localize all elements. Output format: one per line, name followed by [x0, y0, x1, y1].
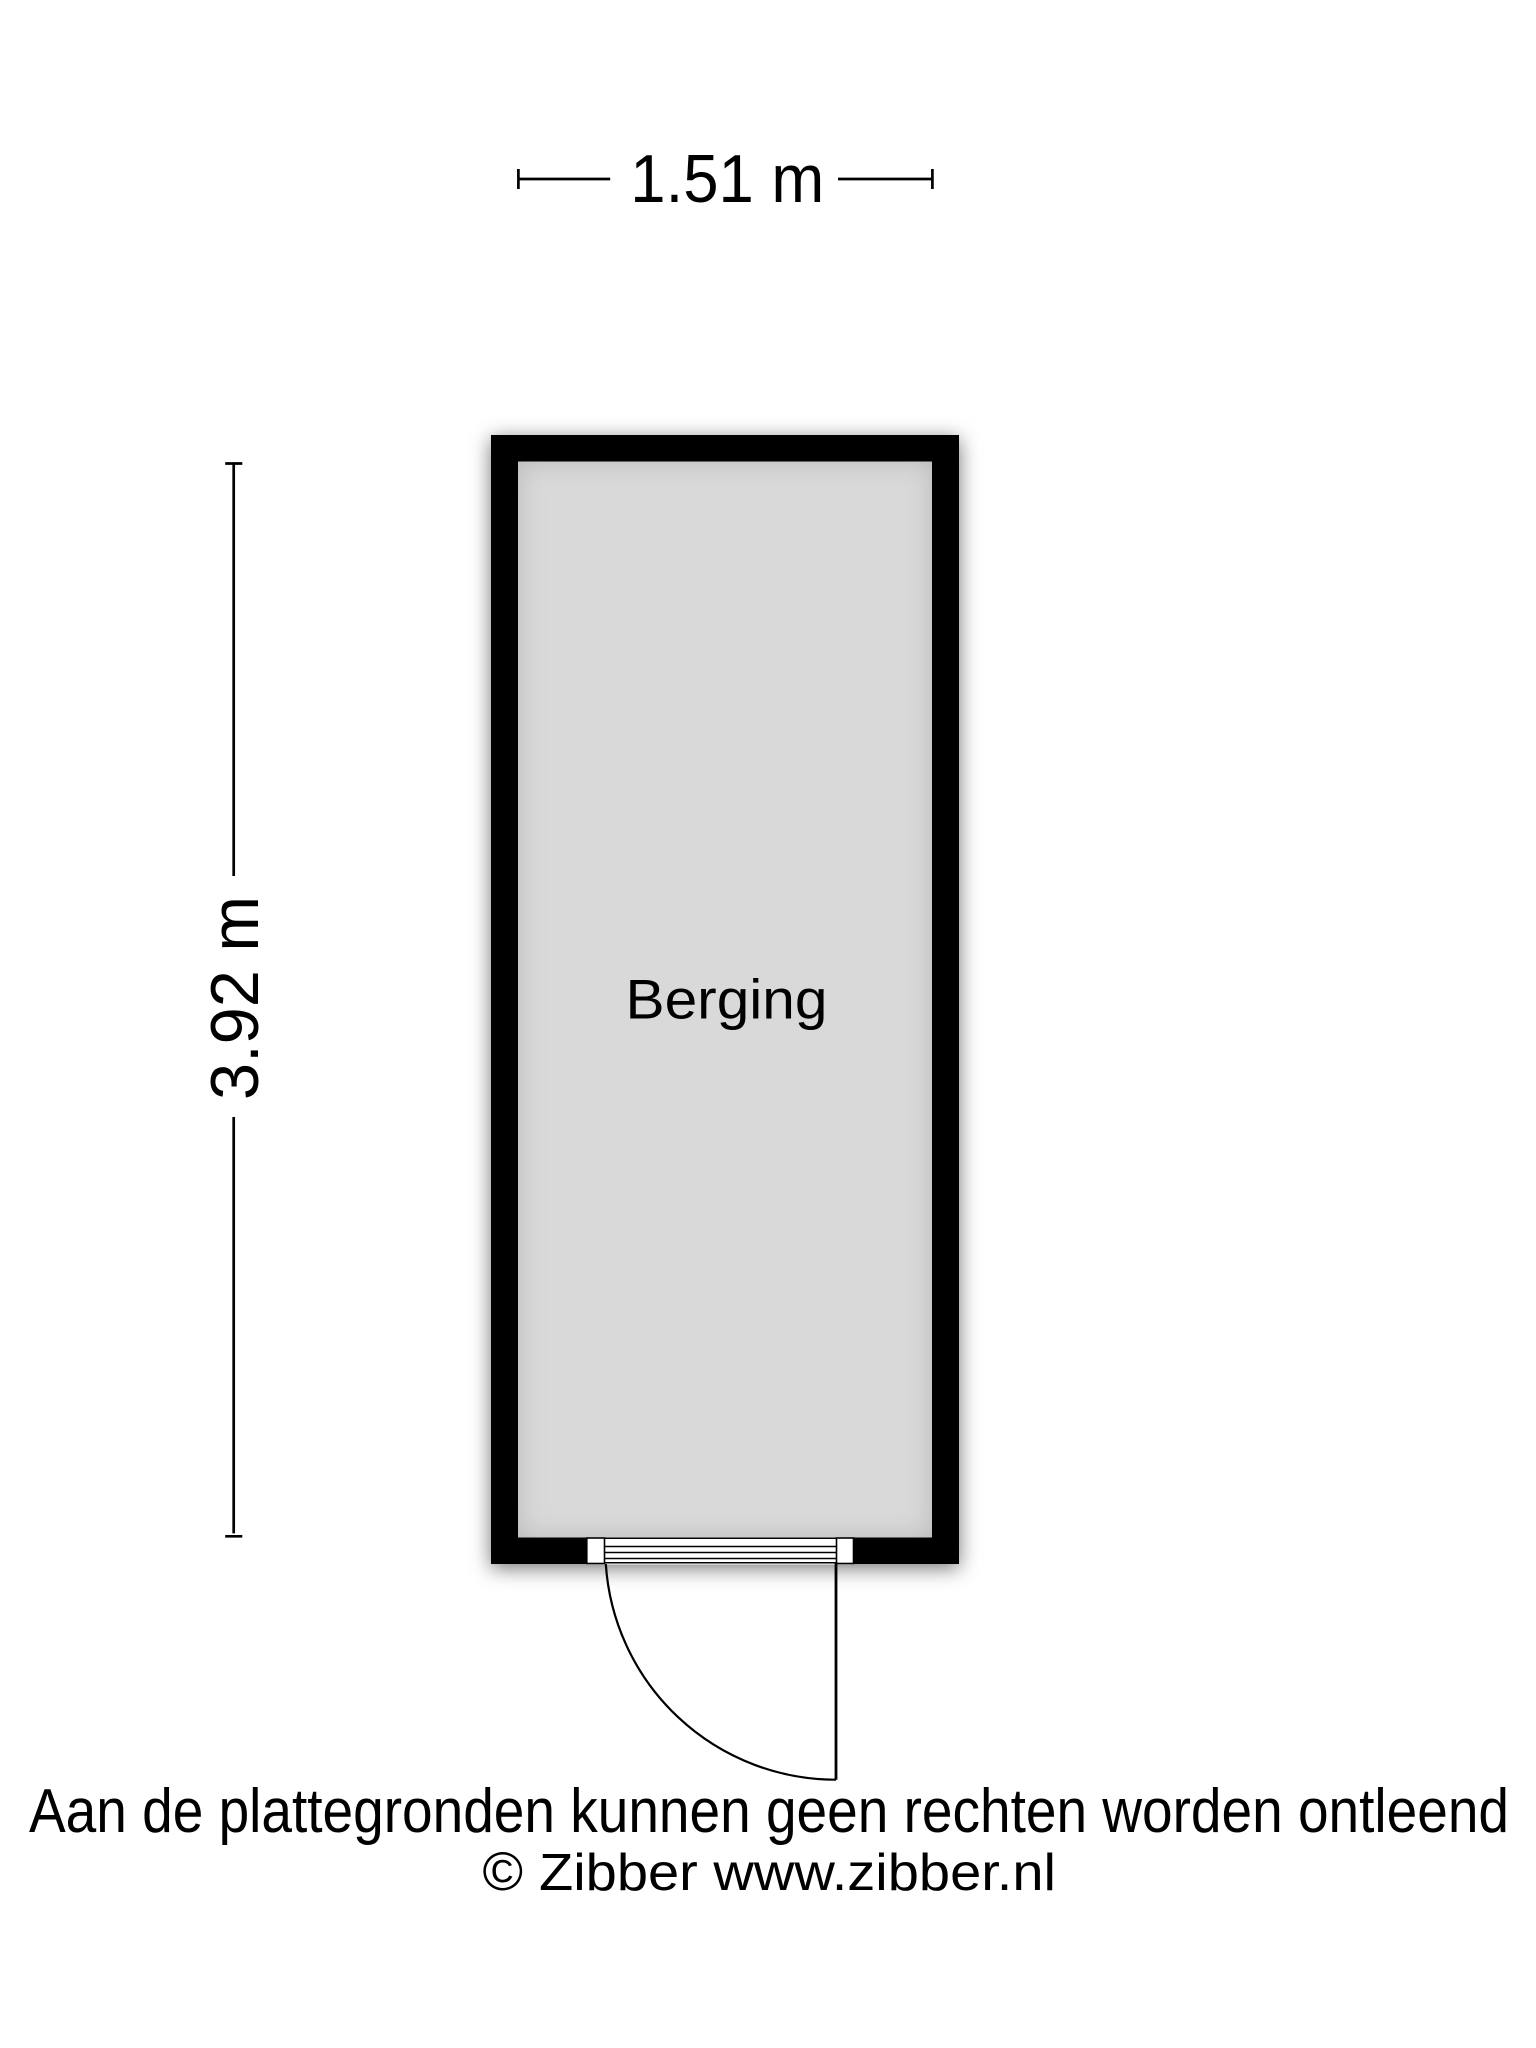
svg-text:3.92 m: 3.92 m [197, 896, 273, 1100]
svg-text:1.51 m: 1.51 m [630, 141, 824, 217]
svg-text:Berging: Berging [626, 968, 828, 1031]
svg-text:Aan de plattegronden kunnen ge: Aan de plattegronden kunnen geen rechten… [29, 1777, 1509, 1846]
svg-text:©: © [483, 1840, 524, 1902]
svg-text:Zibber www.zibber.nl: Zibber www.zibber.nl [539, 1844, 1056, 1902]
